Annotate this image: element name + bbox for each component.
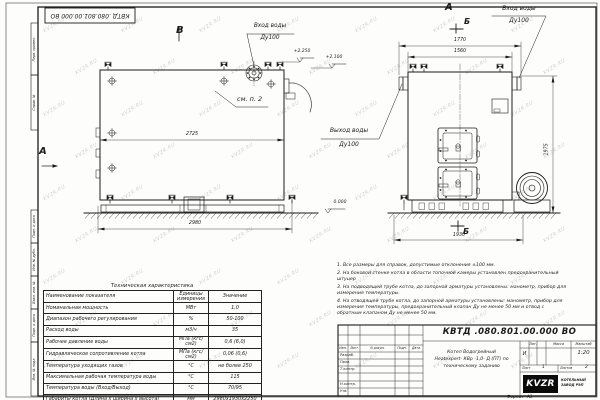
table-row: Температура воды (Вход/Выход)°С70/95 [44,383,262,394]
role-razrab: Разраб. [340,354,354,358]
note-item: 2. На боковой стенке котла в области топ… [337,271,569,283]
row-name: Габариты котла (Длина х ширина х высота) [44,394,174,400]
view-label-a-arrow: А [39,147,47,157]
tech-table-title: Техническая характеристика [43,283,261,289]
section-b-top-tick [450,24,463,33]
sheets-label: Листов [560,367,572,370]
row-name: Температура уходящих газов [44,361,174,372]
table-row: Гидравлическое сопротивление котлаМПа (к… [44,349,262,361]
front-base [412,200,503,212]
elevation-mid: +2.100 [321,56,347,61]
table-row: Габариты котла (Длина х ширина х высота)… [44,394,262,400]
table-row: Диапазон рабочего регулирования%50-100 [44,314,262,325]
mass-label: Масса [546,343,571,346]
notes-block: 1. Все размеры для справок, допустимые о… [337,263,569,319]
elevation-marks [282,58,346,213]
elevation-ground: 0.000 [327,201,353,206]
sheets-value: 2 [585,366,588,370]
see-note-label: см. п. 2 [237,96,262,103]
col-data: Дата [409,347,423,350]
format-value: А3 [527,395,532,399]
inlet-right-label: Вход воды [490,6,548,12]
kvzr-logo: KVZR [523,375,558,393]
row-value: 50-100 [209,314,262,325]
col-header-units: Единицы измерения [174,291,209,303]
table-row: Температура уходящих газов°Сне более 250 [44,361,262,372]
row-units: МПа (кгс/см2) [174,336,209,348]
section-label-b-top: Б [464,18,470,26]
row-units: м3/ч [174,325,209,336]
row-name: Температура воды (Вход/Выход) [44,383,174,394]
outlet-label: Выход воды [318,128,380,134]
table-row: Максимальная рабочая температура воды°С1… [44,372,262,383]
view-a-arrow [42,164,58,168]
row-name: Диапазон рабочего регулирования [44,314,174,325]
drawing-sheet: KVZR.RUKVZR.RUKVZR.RUKVZR.RUKVZR.RUKVZR.… [0,0,600,400]
dim-2725: 2725 [162,133,222,138]
explosion-valve [284,79,311,112]
row-value: 70/95 [209,383,262,394]
row-value: 35 [209,325,262,336]
product-name-line2: Heatexpert- КВр -1,0- Д (ПТ) по [424,356,519,363]
row-units: °С [174,383,209,394]
lower-door [438,167,480,199]
table-row: Рабочее давление водыМПа (кгс/см2)0,6 (6… [44,336,262,348]
dim-2980: 2980 [165,222,225,227]
col-izm: Изм. [338,347,348,350]
view-label-a: А [445,3,453,13]
scale-label: Масштаб [571,343,596,346]
row-value: 2980х1930х2250 [209,394,262,400]
dim-front-base [394,215,523,244]
manhole-flange [246,61,262,86]
col-podp: Подп. [395,347,409,350]
row-name: Рабочее давление воды [44,336,174,348]
row-units: % [174,314,209,325]
dim-1560: 1560 [430,50,490,55]
product-name-line1: Котел Водогрейный [424,349,519,356]
inlet-right-dn: Ду100 [490,18,548,24]
margin-label-vzam-inv: Взам. инв. № [31,276,38,309]
row-name: Номинальная мощность [44,303,174,314]
margin-label-podp-data-2: Подп. и дата [31,309,38,342]
company-line2: ЗАВОД РЭП [561,383,595,388]
role-tkontr: Т.контр. [340,368,356,372]
note-item: 1. Все размеры для справок, допустимые о… [337,263,569,269]
elevation-top: +2.250 [289,50,315,55]
dim-side-body [100,139,284,142]
row-units: МПа (кгс/см2) [174,349,209,361]
company-name: КОТЕЛЬНЫЙ ЗАВОД РЭП [561,378,595,388]
col-doc: N докум. [360,347,395,350]
row-name: Расход воды [44,325,174,336]
margin-label-inv-podl: Инв. № подл. [31,342,38,396]
col-header-name: Наименование показателя [44,291,174,303]
sheet-value: 1 [542,366,545,370]
row-name: Гидравлическое сопротивление котла [44,349,174,361]
margin-label-perv-primen: Перв. примен. [31,23,38,75]
role-nkontr: Н.контр. [340,383,356,387]
dim-front-height [520,76,557,213]
corner-stamp: КВТД .080.801.00.000 ВО [45,9,135,22]
note-item: 3. На подводящей трубе котла, до запорно… [337,285,569,297]
row-name: Максимальная рабочая температура воды [44,372,174,383]
role-prov: Пров. [340,361,350,365]
upper-door [438,128,480,163]
sheet-label: Лист [522,367,530,370]
tech-table: Наименование показателя Единицы измерени… [43,290,262,400]
product-name-line3: техническому заданию [424,363,519,370]
table-row: Расход водым3/ч35 [44,325,262,336]
tech-table-header-row: Наименование показателя Единицы измерени… [44,291,262,303]
support-box [184,197,204,212]
row-value: 0,06 (0,6) [209,349,262,361]
col-list: Лист [348,347,360,350]
control-panel [492,99,508,113]
dim-1975: 1975 [546,134,551,164]
fan-blower [512,173,550,213]
dim-1770: 1770 [430,39,490,44]
col-header-value: Значение [209,291,262,303]
role-utv: Утв. [340,390,348,394]
row-value: 0,6 (6,0) [209,336,262,348]
outlet-dn: Ду100 [318,142,380,148]
lit-value: И [520,352,529,357]
product-name: Котел Водогрейный Heatexpert- КВр -1,0- … [424,349,519,370]
inlet-left-label: Вход воды [244,24,296,30]
row-units: °С [174,372,209,383]
margin-label-podp-data-1: Подп. и дата [31,210,38,243]
inlet-left-dn: Ду100 [244,36,296,42]
scale-value: 1:20 [571,351,596,357]
doc-number: КВТД .080.801.00.000 ВО [424,328,595,337]
row-units: °С [174,361,209,372]
view-label-b: В [176,26,184,36]
row-units: мм [174,394,209,400]
note-item: 4. На отводящей трубе котла, до запорной… [337,299,569,318]
format-label: Формат [507,395,524,399]
margin-label-inv-dubl: Инв. № дубл. [31,243,38,276]
lit-label: Лит. [520,343,546,346]
row-value: 1,0 [209,303,262,314]
margin-label-sprav: Справ. № [31,75,38,130]
row-value: 115 [209,372,262,383]
row-value: не более 250 [209,361,262,372]
dim-1930: 1930 [428,234,490,239]
table-row: Номинальная мощностьМВт1,0 [44,303,262,314]
row-units: МВт [174,303,209,314]
